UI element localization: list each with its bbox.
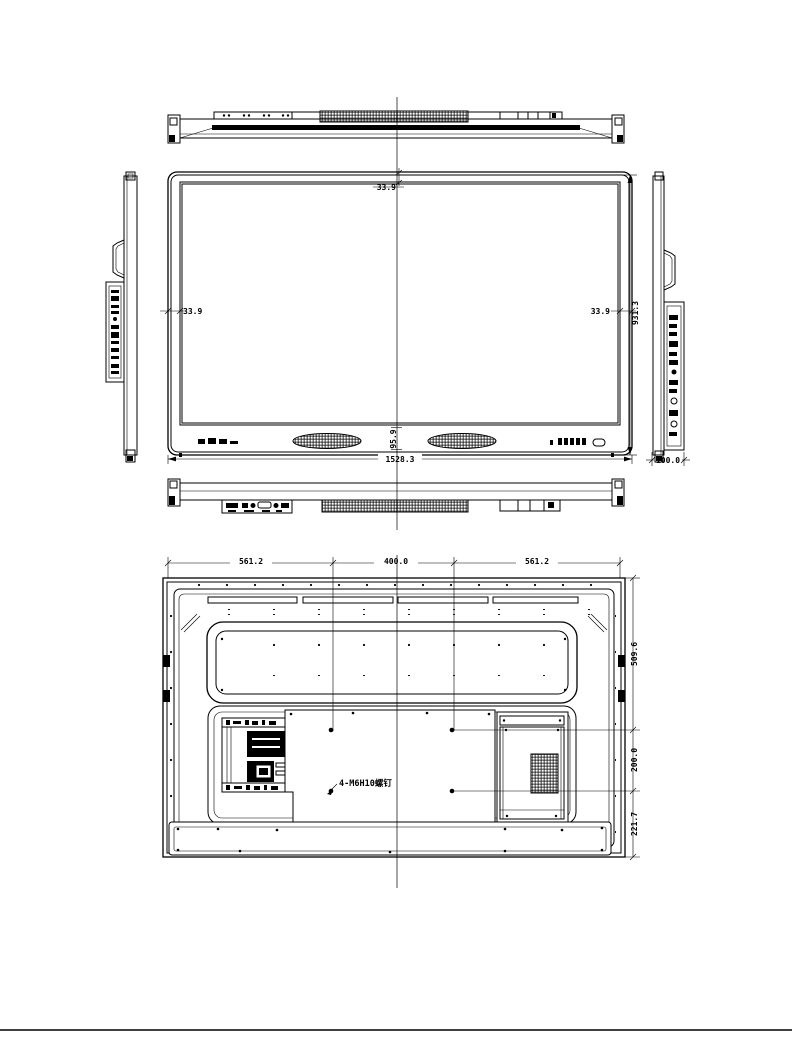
rear-left-io-module — [222, 718, 285, 792]
right-speaker-grille — [428, 434, 496, 449]
dim-front-top-bezel: 33.9 — [377, 183, 396, 192]
top-vent-grille — [320, 111, 468, 122]
bottom-vent-grille — [322, 500, 468, 512]
vesa-hole-top-right — [450, 728, 455, 733]
front-dimensions: 33.9 33.9 33.9 931.3 1528.3 95.9 — [160, 168, 640, 464]
front-port-icons — [550, 438, 586, 445]
dim-rear-top-right: 561.2 — [525, 557, 549, 566]
rear-right-module — [497, 712, 568, 823]
dim-front-height: 931.3 — [631, 301, 640, 325]
dim-rear-lower: 221.7 — [630, 812, 639, 836]
ir-sensor-window — [593, 439, 605, 446]
left-side-view — [106, 172, 137, 462]
top-gasket-bar — [212, 125, 580, 130]
front-outer-frame — [168, 172, 632, 455]
top-port-dots — [223, 114, 289, 116]
side-port-icons-right — [669, 315, 678, 436]
left-speaker-grille — [293, 434, 361, 449]
front-view: 33.9 33.9 33.9 931.3 1528.3 95.9 — [160, 168, 640, 464]
dim-front-width: 1528.3 — [386, 455, 415, 464]
dim-front-right-bezel: 33.9 — [591, 307, 610, 316]
rear-top-vent-panel — [207, 622, 577, 703]
drawing-page: 33.9 33.9 33.9 931.3 1528.3 95.9 — [0, 0, 792, 1039]
side-port-icons — [111, 290, 119, 374]
dim-rear-upper: 509.6 — [630, 642, 639, 666]
vesa-screw-note: 4-M6H10螺钉 — [339, 778, 392, 789]
rear-vent-grid — [531, 754, 558, 793]
top-port-block — [214, 112, 292, 119]
top-view — [168, 111, 624, 143]
rear-handle-slots[interactable] — [208, 597, 578, 603]
dim-front-left-bezel: 33.9 — [183, 307, 202, 316]
rear-view: 561.2 400.0 561.2 509.6 200.0 221.7 4-M6… — [163, 556, 640, 860]
rear-bottom-bar — [169, 822, 611, 855]
io-port-block — [247, 731, 285, 757]
rear-screw-row-top — [186, 583, 614, 588]
dim-rear-vesa-vertical: 200.0 — [630, 748, 639, 772]
right-side-view: 100.0 — [646, 172, 690, 466]
front-control-buttons[interactable] — [198, 438, 238, 444]
dim-rear-vesa-horizontal: 400.0 — [384, 557, 408, 566]
bottom-view-body — [180, 483, 612, 500]
vesa-hole-top-left — [329, 728, 334, 733]
dim-side-depth: 100.0 — [656, 456, 680, 465]
vesa-hole-bottom-right — [450, 789, 455, 794]
dim-rear-top-left: 561.2 — [239, 557, 263, 566]
bottom-view — [168, 479, 624, 513]
bottom-connector-icons — [226, 502, 289, 512]
front-active-area — [180, 182, 620, 425]
